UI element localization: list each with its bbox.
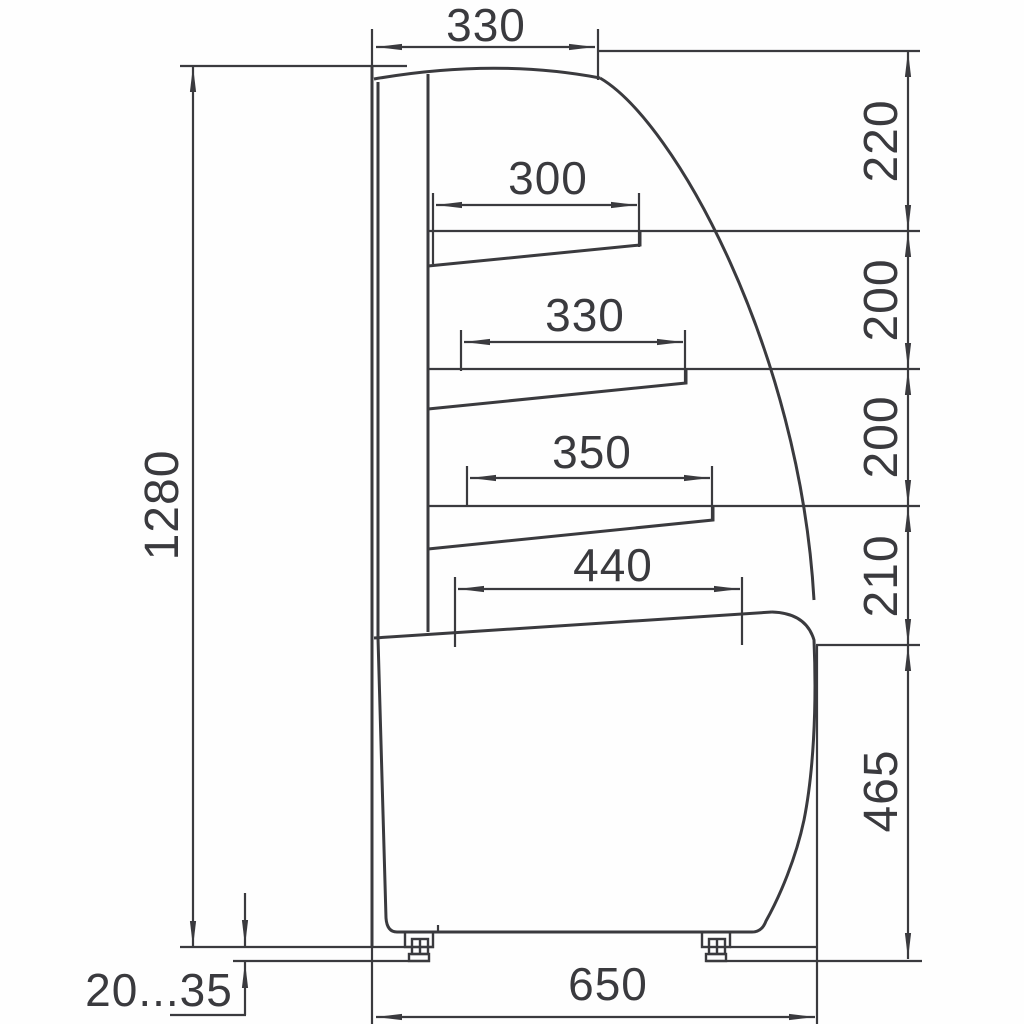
label-gap-top: 220 <box>855 99 908 182</box>
display-deck <box>374 612 772 638</box>
shelf1-wedge <box>428 231 640 266</box>
label-overall-height: 1280 <box>136 450 189 561</box>
label-top-depth: 330 <box>446 0 526 51</box>
right-foot <box>702 932 730 961</box>
label-gap-third: 200 <box>855 395 908 478</box>
lower-front-panel <box>752 612 815 932</box>
shelf3-wedge <box>428 506 713 549</box>
shelves <box>428 231 920 549</box>
label-leg-adjust: 20...35 <box>85 964 233 1016</box>
adjustable-feet <box>405 932 730 961</box>
label-gap-second: 200 <box>855 258 908 341</box>
canopy-top <box>374 68 600 79</box>
label-shelf1-depth: 300 <box>508 152 588 204</box>
label-base-height: 465 <box>855 749 908 832</box>
technical-drawing-side-view: 330 300 330 350 440 650 20...35 1280 220… <box>0 0 1024 1024</box>
label-gap-fourth: 210 <box>855 534 908 617</box>
label-shelf3-depth: 350 <box>552 426 632 478</box>
label-base-depth: 650 <box>568 958 648 1010</box>
dimension-labels: 330 300 330 350 440 650 20...35 1280 220… <box>85 0 908 1016</box>
label-shelf2-depth: 330 <box>545 289 625 341</box>
drawing-canvas: 330 300 330 350 440 650 20...35 1280 220… <box>0 0 1024 1024</box>
shelf2-wedge <box>428 369 686 409</box>
back-wall-inner <box>378 82 397 932</box>
label-deck-depth: 440 <box>573 539 653 591</box>
